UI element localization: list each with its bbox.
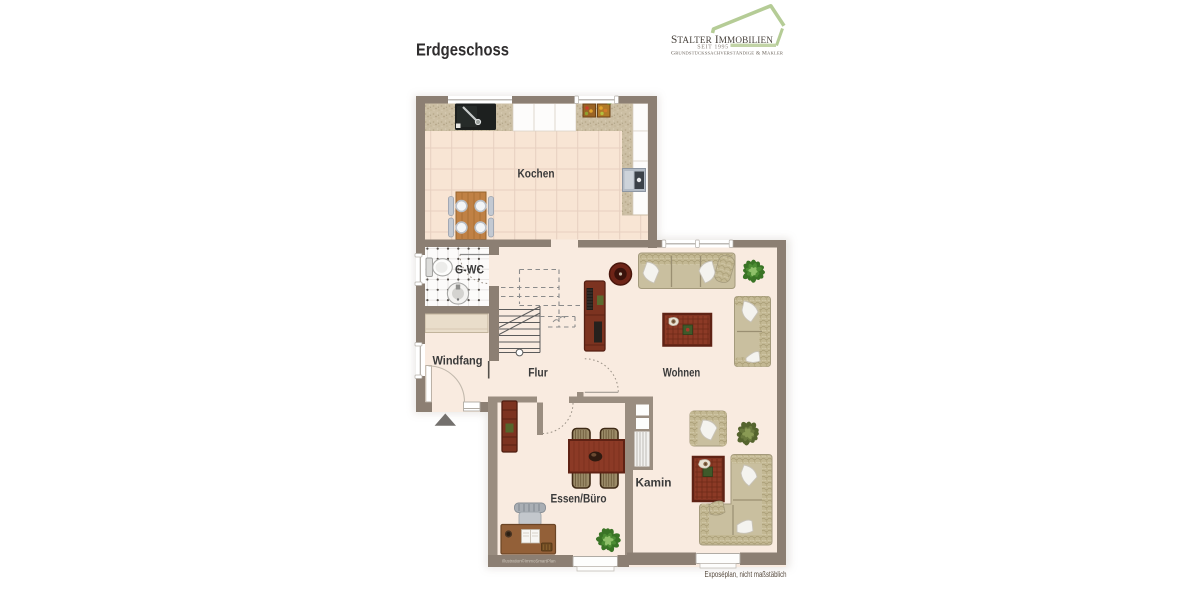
svg-text:Windfang: Windfang (433, 356, 483, 368)
svg-text:Illustration©ImmoSmartPlan: Illustration©ImmoSmartPlan (502, 559, 556, 564)
svg-text:Essen/Büro: Essen/Büro (551, 494, 607, 506)
svg-text:Kochen: Kochen (518, 169, 555, 181)
svg-text:GRUNDSTÜCKSSACHVERSTÄNDIGE & M: GRUNDSTÜCKSSACHVERSTÄNDIGE & MAKLER (671, 51, 784, 57)
svg-text:G-WC: G-WC (455, 265, 484, 277)
svg-text:Flur: Flur (528, 368, 548, 380)
svg-text:Exposéplan, nicht maßstäblich: Exposéplan, nicht maßstäblich (705, 570, 787, 579)
svg-text:SEIT 1995: SEIT 1995 (697, 44, 728, 50)
svg-text:Wohnen: Wohnen (663, 368, 701, 380)
svg-text:Erdgeschoss: Erdgeschoss (416, 40, 509, 60)
svg-text:Kamin: Kamin (636, 478, 672, 490)
